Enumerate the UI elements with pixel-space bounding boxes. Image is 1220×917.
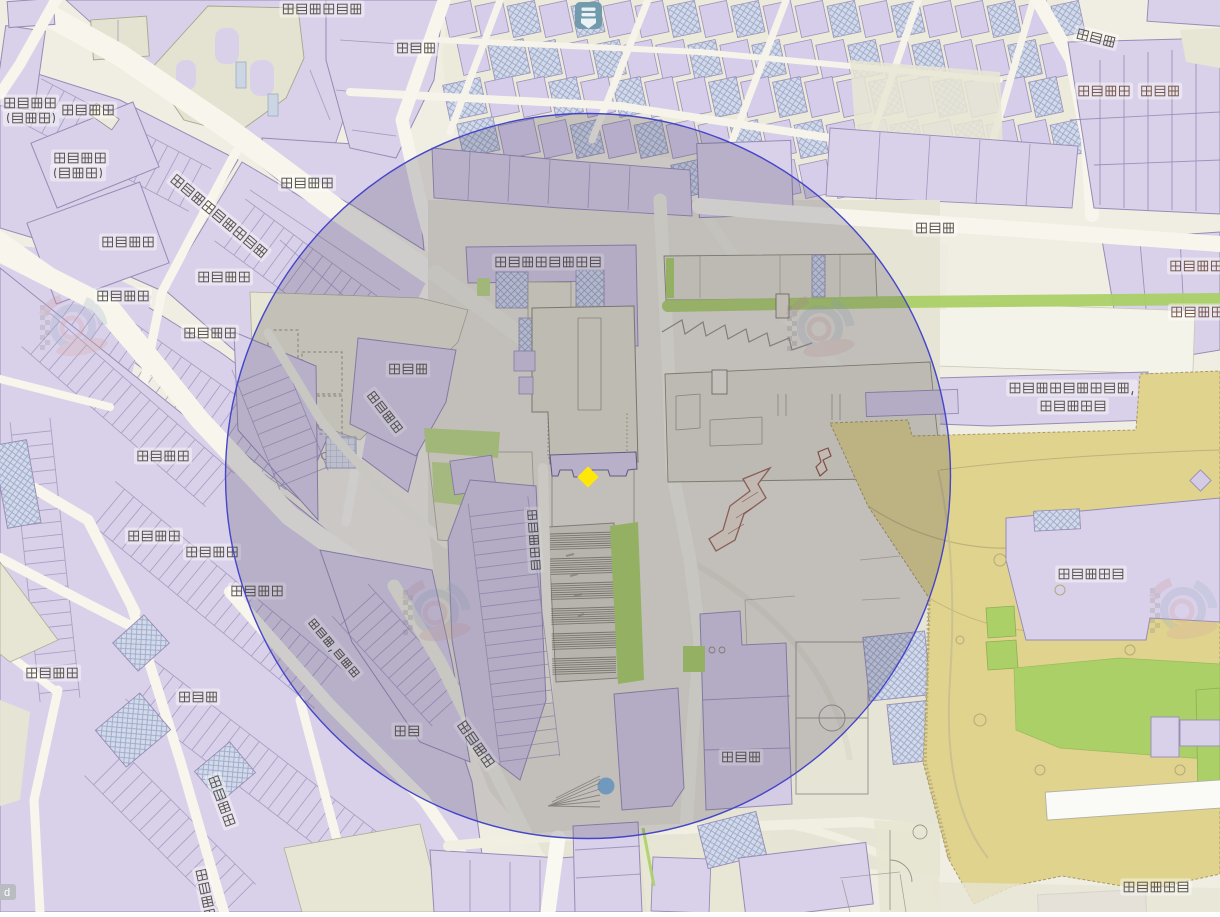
svg-text:d: d xyxy=(4,887,10,899)
